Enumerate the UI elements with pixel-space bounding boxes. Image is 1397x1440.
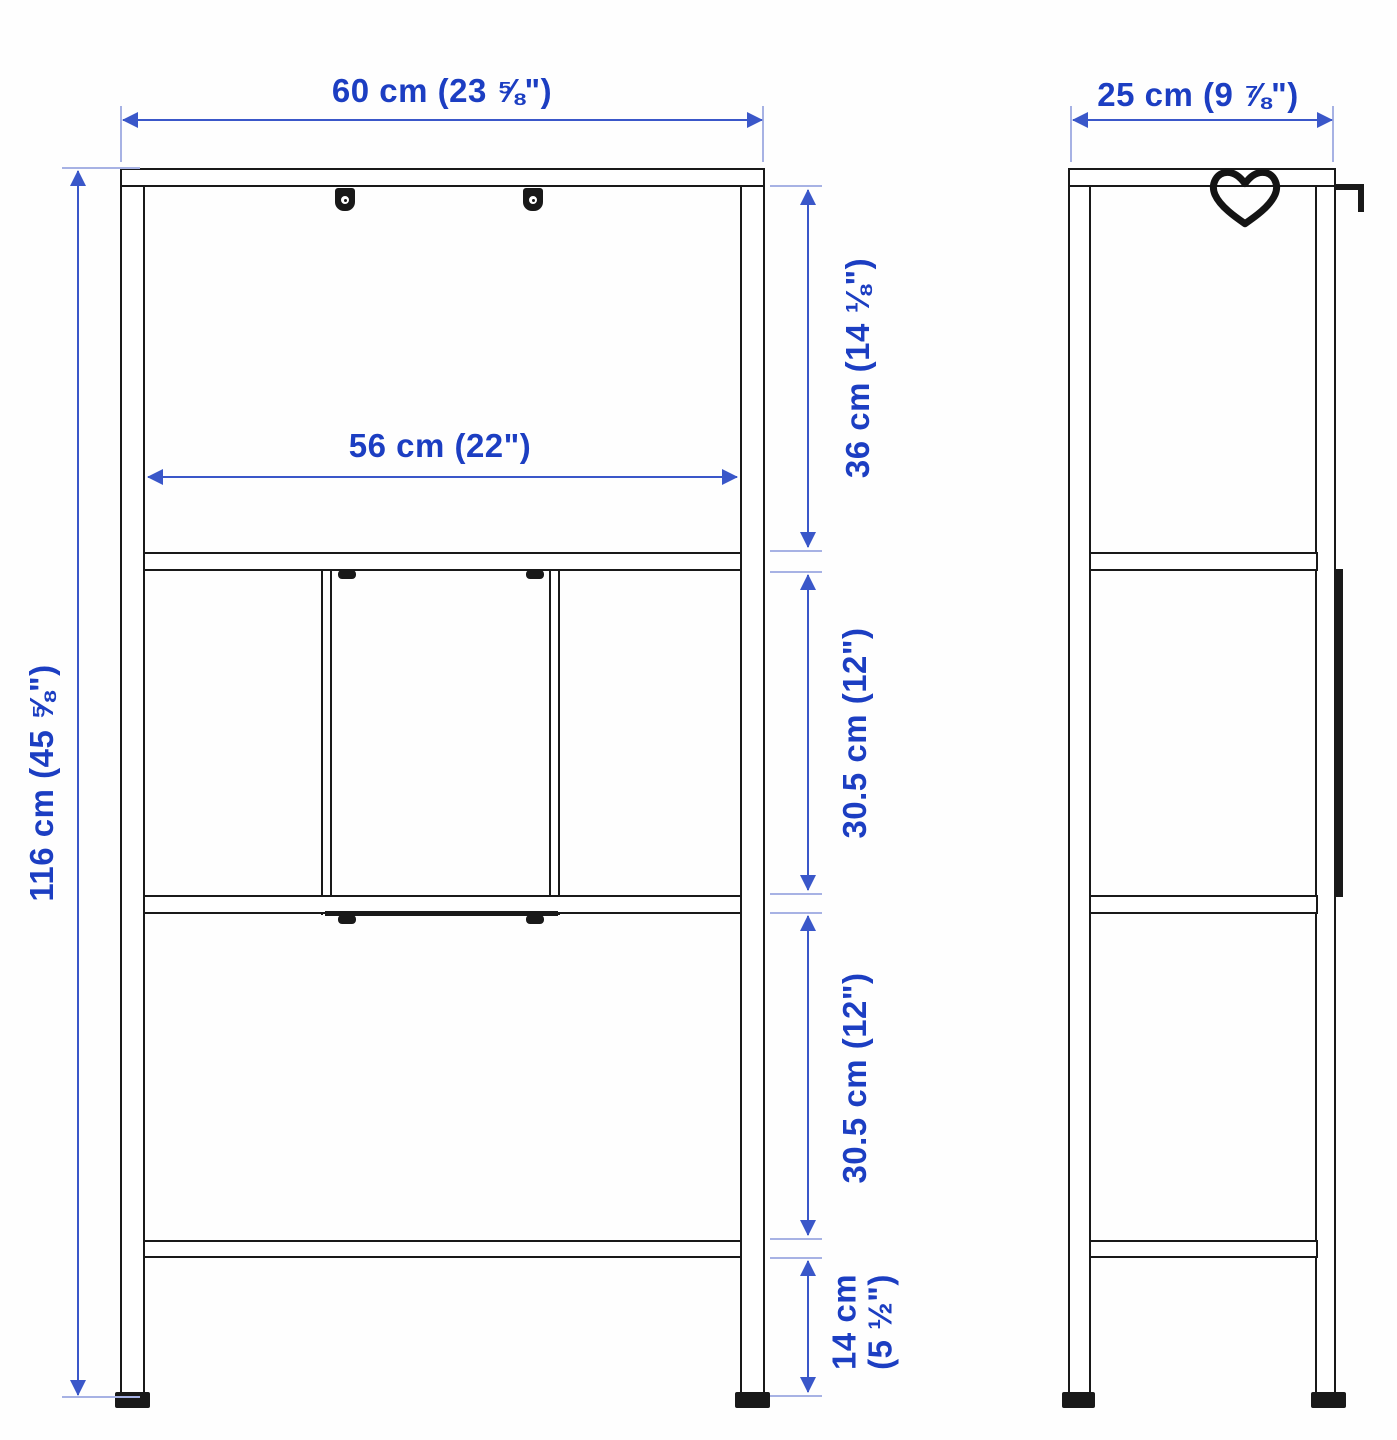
dim-arrow-total-height bbox=[77, 171, 79, 1395]
dim-arrow-inner-width bbox=[148, 476, 737, 478]
dim-label-top-section: 36 cm (14 ⅛") bbox=[840, 258, 876, 478]
dimension-diagram: 60 cm (23 ⅝") 116 cm (45 ⅝") 56 cm (22")… bbox=[0, 0, 1397, 1440]
dim-label-base-section: 14 cm (5 ½") bbox=[826, 1274, 897, 1370]
side-front-post bbox=[1068, 168, 1091, 1397]
dim-arrow-top-section bbox=[807, 190, 809, 547]
side-top-shelf bbox=[1068, 168, 1336, 187]
dim-arrow-lower-section bbox=[807, 916, 809, 1235]
front-right-post bbox=[740, 168, 765, 1397]
dim-tick bbox=[770, 1238, 822, 1240]
dim-label-depth: 25 cm (9 ⅞") bbox=[1097, 76, 1298, 114]
front-right-foot bbox=[735, 1392, 770, 1408]
panel-top-tab bbox=[526, 570, 544, 579]
front-shelf-2 bbox=[143, 552, 742, 571]
wall-anchor-icon bbox=[523, 188, 543, 211]
side-shelf-3 bbox=[1089, 895, 1318, 914]
dim-label-total-width: 60 cm (23 ⅝") bbox=[332, 72, 552, 110]
dim-arrow-total-width bbox=[123, 119, 762, 121]
front-left-foot bbox=[115, 1392, 150, 1408]
dim-label-inner-width: 56 cm (22") bbox=[349, 427, 532, 465]
anchor-pin-icon bbox=[344, 199, 347, 202]
back-panel-right-edge bbox=[549, 571, 560, 915]
front-top-shelf bbox=[120, 168, 765, 187]
dim-tick bbox=[62, 1396, 140, 1398]
front-left-post bbox=[120, 168, 145, 1397]
dim-tick bbox=[770, 893, 822, 895]
dim-tick bbox=[770, 1395, 822, 1397]
dim-tick bbox=[770, 571, 822, 573]
dim-tick bbox=[770, 185, 822, 187]
wall-hook-icon bbox=[1358, 184, 1364, 212]
panel-top-tab bbox=[338, 570, 356, 579]
side-back-panel bbox=[1336, 569, 1343, 897]
dim-label-total-height: 116 cm (45 ⅝") bbox=[24, 664, 60, 901]
wall-anchor-icon bbox=[335, 188, 355, 211]
panel-bottom-rail bbox=[325, 911, 558, 916]
dim-tick bbox=[770, 912, 822, 914]
dim-tick bbox=[62, 167, 140, 169]
front-bottom-shelf bbox=[143, 1240, 742, 1258]
dim-arrow-middle-section bbox=[807, 575, 809, 890]
anchor-pin-icon bbox=[532, 199, 535, 202]
favorite-heart-icon[interactable] bbox=[1203, 156, 1287, 236]
panel-bottom-tab bbox=[338, 915, 356, 924]
back-panel-left-edge bbox=[321, 571, 332, 915]
side-back-foot bbox=[1311, 1392, 1346, 1408]
dim-tick bbox=[770, 550, 822, 552]
panel-bottom-tab bbox=[526, 915, 544, 924]
dim-arrow-depth bbox=[1073, 119, 1332, 121]
side-back-post bbox=[1315, 168, 1336, 1397]
side-bottom-shelf bbox=[1089, 1240, 1318, 1258]
dim-tick bbox=[770, 1257, 822, 1259]
side-shelf-2 bbox=[1089, 552, 1318, 571]
dim-label-lower-section: 30.5 cm (12") bbox=[837, 972, 873, 1183]
side-front-foot bbox=[1062, 1392, 1095, 1408]
dim-arrow-base-section bbox=[807, 1261, 809, 1392]
dim-label-middle-section: 30.5 cm (12") bbox=[837, 627, 873, 838]
